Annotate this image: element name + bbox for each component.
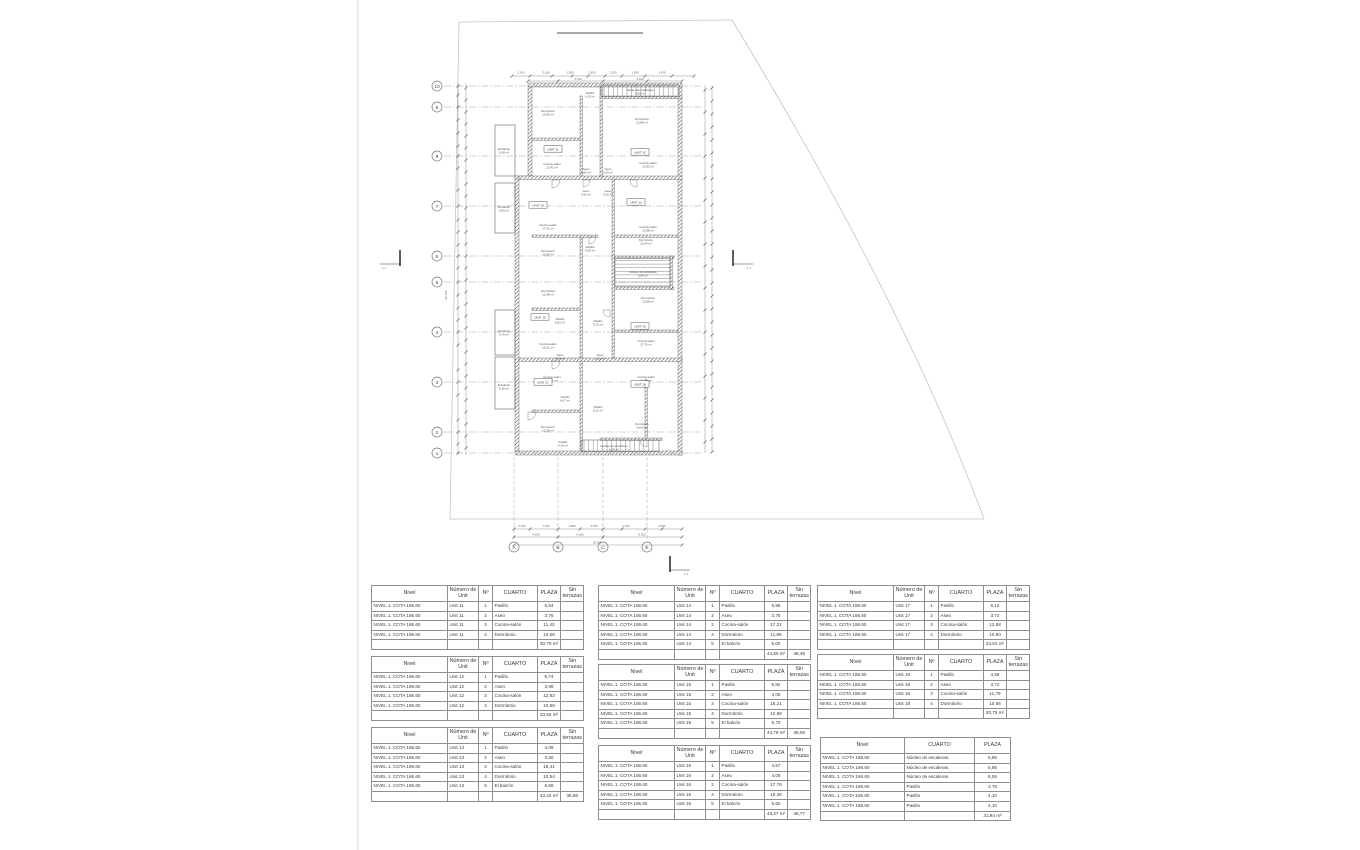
- cell: [788, 762, 811, 772]
- cell: 1: [706, 762, 720, 772]
- cell: 3,75: [765, 611, 788, 621]
- dimension-label: 2.100: [518, 524, 526, 528]
- cell: 5,95: [975, 754, 1011, 764]
- table-row: NIVEL 1. COTA 186.60Unit 133Cocina-salón…: [372, 763, 584, 773]
- cell: 4,08: [765, 771, 788, 781]
- table-row: NIVEL 1. COTA 186.60Unit 122Aseo3,99: [372, 682, 584, 692]
- dimension-label: 1.850: [568, 524, 576, 528]
- cell: Aseo: [720, 771, 765, 781]
- column-header: Nivel: [599, 746, 675, 762]
- cell: [561, 744, 584, 754]
- cell: Núcleo de escaleras.: [905, 763, 975, 773]
- table-row: NIVEL 1. COTA 186.60Núcleo de escaleras.…: [821, 773, 1011, 783]
- room-label: Aseo3,85 m²: [581, 167, 591, 174]
- dimension-label: 6.000: [576, 533, 584, 537]
- cell: [788, 781, 811, 791]
- column-header: PLAZA: [975, 738, 1011, 754]
- cell: Dormitorio: [720, 630, 765, 640]
- table-row: NIVEL 1. COTA 186.60Unit 151Pasillo6,82: [599, 681, 811, 691]
- cell: NIVEL 1. COTA 186.60: [372, 753, 448, 763]
- schedule-unit-12: NivelNúmero de UnitNºCUARTOPLAZASin terr…: [371, 656, 584, 721]
- column-header: CUARTO: [720, 746, 765, 762]
- total-area: 33,55 m²: [538, 711, 561, 721]
- dimension-label: 4.100: [532, 533, 540, 537]
- cell: 5,54: [538, 602, 561, 612]
- table-row: NIVEL 1. COTA 186.60Núcleo de escaleras.…: [821, 754, 1011, 764]
- cell: NIVEL 1. COTA 186.60: [372, 682, 448, 692]
- cell: 3,72: [984, 611, 1007, 621]
- dimension-label: 2.100: [609, 71, 617, 75]
- cell: NIVEL 1. COTA 186.60: [372, 673, 448, 683]
- cell: NIVEL 1. COTA 186.60: [818, 680, 894, 690]
- header-row: NivelNúmero de UnitNºCUARTOPLAZASin terr…: [818, 655, 1030, 671]
- cell: Unit 15: [675, 690, 706, 700]
- cell: Aseo: [720, 690, 765, 700]
- column-header: CUARTO: [720, 586, 765, 602]
- cell: 18,41: [538, 763, 561, 773]
- grid-bubble-label: E: [645, 545, 648, 551]
- cell: [788, 690, 811, 700]
- cell: Cocina-salón: [720, 781, 765, 791]
- room-label: Aseo3,91 m²: [581, 189, 591, 196]
- total-row: 30,79 m²: [372, 640, 584, 650]
- cell: [372, 711, 448, 721]
- cell: NIVEL 1. COTA 186.60: [821, 754, 905, 764]
- cell: [788, 790, 811, 800]
- cell: Pasillo: [720, 762, 765, 772]
- cell: 6,12: [984, 602, 1007, 612]
- cell: 2: [706, 771, 720, 781]
- room-label: Cocina-salón15,21 m²: [539, 342, 557, 349]
- cell: [925, 640, 939, 650]
- table-row: NIVEL 1. COTA 186.60Unit 171Pasillo6,12: [818, 602, 1030, 612]
- column-header: CUARTO: [720, 665, 765, 681]
- room-label: Pasillo5,95 m²: [585, 245, 595, 252]
- cell: [479, 640, 493, 650]
- room-label: Cocina-salón13,41 m²: [543, 162, 561, 169]
- cell: 3: [706, 621, 720, 631]
- cell: Cocina-salón: [720, 700, 765, 710]
- cell: [372, 640, 448, 650]
- cell: 3,99: [538, 682, 561, 692]
- cell: 5,95: [765, 602, 788, 612]
- cell: Dormitorio: [720, 709, 765, 719]
- column-header: Sin terrazas: [561, 586, 584, 602]
- cell: Unit 16: [675, 781, 706, 791]
- room-label: Cocina-salón12,83 m²: [639, 161, 657, 168]
- grid-bubble-label: 4: [436, 330, 439, 336]
- cell: NIVEL 1. COTA 186.60: [599, 681, 675, 691]
- building-walls: [515, 83, 682, 455]
- total-area: 44,79 m²: [765, 728, 788, 738]
- column-header: CUARTO: [939, 586, 984, 602]
- cell: NIVEL 1. COTA 186.60: [599, 709, 675, 719]
- cell: Pasillo: [493, 602, 538, 612]
- dimension-label: 2.650: [588, 71, 596, 75]
- drawing-sheet: 10987654321ABCEDormitorio13,69 m²Pasillo…: [0, 0, 1360, 850]
- cell: [1007, 621, 1030, 631]
- dimension-label: 2.100: [622, 524, 630, 528]
- column-header: Número de Unit: [675, 746, 706, 762]
- section-marker-label: 1.1: [684, 572, 688, 576]
- cell: Unit 13: [448, 753, 479, 763]
- cell: Pasillo: [905, 792, 975, 802]
- cell: 39,09: [788, 728, 811, 738]
- cell: Aseo: [493, 682, 538, 692]
- cell: NIVEL 1. COTA 186.60: [818, 699, 894, 709]
- cell: Dormitorio: [720, 790, 765, 800]
- cell: [493, 711, 538, 721]
- column-header: Nivel: [372, 657, 448, 673]
- overall-dimension-label: 29.390: [444, 290, 448, 299]
- cell: Unit 12: [448, 692, 479, 702]
- cell: [372, 791, 448, 801]
- column-header: CUARTO: [493, 586, 538, 602]
- schedule-unit-18: NivelNúmero de UnitNºCUARTOPLAZASin terr…: [817, 654, 1030, 719]
- cell: NIVEL 1. COTA 186.60: [599, 771, 675, 781]
- grid-bubble-label: 1: [436, 451, 439, 457]
- cell: Pasillo: [493, 744, 538, 754]
- cell: 11,43: [538, 621, 561, 631]
- cell: 12,88: [984, 621, 1007, 631]
- cell: [599, 728, 675, 738]
- cell: [561, 630, 584, 640]
- column-header: Nivel: [599, 665, 675, 681]
- balconies: [495, 125, 515, 409]
- cell: Unit 17: [894, 630, 925, 640]
- cell: NIVEL 1. COTA 186.60: [372, 772, 448, 782]
- table-row: NIVEL 1. COTA 186.60Pasillo3,78: [821, 782, 1011, 792]
- cell: El balcón: [720, 800, 765, 810]
- cell: 17,21: [765, 621, 788, 631]
- cell: NIVEL 1. COTA 186.60: [599, 621, 675, 631]
- cell: Unit 14: [675, 630, 706, 640]
- column-header: Sin terrazas: [1007, 586, 1030, 602]
- cell: NIVEL 1. COTA 186.60: [821, 763, 905, 773]
- table-row: NIVEL 1. COTA 186.60Unit 113Cocina-salón…: [372, 621, 584, 631]
- cell: [821, 811, 905, 821]
- grid-bubble-label: 7: [436, 204, 439, 210]
- schedule-unit-15: NivelNúmero de UnitNºCUARTOPLAZASin terr…: [598, 664, 811, 739]
- column-header: Nivel: [818, 586, 894, 602]
- room-label: Dormitorio13,88 m²: [635, 117, 649, 124]
- total-area: 43,37 m²: [765, 809, 788, 819]
- room-label: Dormitorio13,88 m²: [641, 296, 655, 303]
- column-header: Nº: [706, 665, 720, 681]
- cell: 38,49: [788, 649, 811, 659]
- cell: 3: [706, 700, 720, 710]
- cell: [561, 611, 584, 621]
- room-label: El balcón5,68 m²: [498, 147, 511, 154]
- cell: [894, 709, 925, 719]
- cell: [675, 809, 706, 819]
- table-row: NIVEL 1. COTA 186.60Núcleo de escaleras.…: [821, 763, 1011, 773]
- cell: Cocina-salón: [939, 621, 984, 631]
- cell: NIVEL 1. COTA 186.60: [818, 630, 894, 640]
- grid-bubble-label: 3: [436, 380, 439, 386]
- cell: Dormitorio: [939, 630, 984, 640]
- section-marker-label: 1.1: [382, 266, 386, 270]
- total-row: 43,37 m²36,77: [599, 809, 811, 819]
- column-header: Nivel: [599, 586, 675, 602]
- cell: 3: [925, 621, 939, 631]
- table-row: NIVEL 1. COTA 186.60Unit 132Aseo3,60: [372, 753, 584, 763]
- cell: 5,74: [538, 673, 561, 683]
- cell: Unit 15: [675, 709, 706, 719]
- cell: [905, 811, 975, 821]
- table-row: NIVEL 1. COTA 186.60Unit 155El balcón5,7…: [599, 719, 811, 729]
- cell: NIVEL 1. COTA 186.60: [599, 781, 675, 791]
- room-label: Núcleo de escaleras5,95 m²: [600, 444, 628, 451]
- cell: [939, 709, 984, 719]
- cell: Pasillo: [720, 681, 765, 691]
- cell: Unit 17: [894, 621, 925, 631]
- table-row: NIVEL 1. COTA 186.60Pasillo4,10: [821, 792, 1011, 802]
- table-row: NIVEL 1. COTA 186.60Unit 131Pasillo4,09: [372, 744, 584, 754]
- cell: NIVEL 1. COTA 186.60: [818, 671, 894, 681]
- cell: [599, 809, 675, 819]
- cell: 6,00: [765, 640, 788, 650]
- cell: Cocina-salón: [720, 621, 765, 631]
- cell: 5,70: [765, 719, 788, 729]
- cell: Unit 14: [675, 640, 706, 650]
- cell: [939, 640, 984, 650]
- column-header: Nº: [925, 586, 939, 602]
- cell: 3: [925, 690, 939, 700]
- cell: 4,58: [984, 671, 1007, 681]
- header-row: NivelNúmero de UnitNºCUARTOPLAZASin terr…: [372, 657, 584, 673]
- cell: 10,54: [538, 772, 561, 782]
- header-row: NivelNúmero de UnitNºCUARTOPLAZASin terr…: [599, 586, 811, 602]
- cell: NIVEL 1. COTA 186.60: [818, 611, 894, 621]
- column-header: Nº: [706, 586, 720, 602]
- cell: [599, 649, 675, 659]
- cell: Unit 13: [448, 782, 479, 792]
- cell: Unit 13: [448, 744, 479, 754]
- column-header: Nivel: [821, 738, 905, 754]
- cell: [1007, 699, 1030, 709]
- cell: [561, 763, 584, 773]
- room-label: Cocina-salón17,76 m²: [637, 339, 655, 346]
- column-header: Nivel: [372, 728, 448, 744]
- room-label: El balcón5,30 m²: [498, 383, 511, 390]
- cell: 10,06: [538, 630, 561, 640]
- room-label: El balcón5,55 m²: [498, 205, 511, 212]
- dimension-label: 2.850: [658, 524, 666, 528]
- cell: [788, 630, 811, 640]
- column-header: PLAZA: [765, 746, 788, 762]
- cell: [720, 728, 765, 738]
- cell: 12,98: [765, 709, 788, 719]
- cell: [706, 728, 720, 738]
- column-header: Número de Unit: [675, 586, 706, 602]
- room-label: Pasillo4,13 m²: [585, 91, 595, 98]
- cell: 6,60: [765, 800, 788, 810]
- header-row: NivelNúmero de UnitNºCUARTOPLAZASin terr…: [372, 728, 584, 744]
- cell: [1007, 611, 1030, 621]
- cell: Unit 15: [675, 719, 706, 729]
- cell: 3: [479, 763, 493, 773]
- cell: NIVEL 1. COTA 186.60: [599, 602, 675, 612]
- cell: 2: [479, 682, 493, 692]
- cell: NIVEL 1. COTA 186.60: [372, 621, 448, 631]
- dimension-label: 1.550: [631, 71, 639, 75]
- column-header: Número de Unit: [448, 657, 479, 673]
- room-label: Aseo3,64 m²: [603, 167, 613, 174]
- column-header: Nº: [706, 746, 720, 762]
- cell: [1007, 680, 1030, 690]
- cell: 4: [925, 699, 939, 709]
- cell: [561, 782, 584, 792]
- cell: Unit 11: [448, 611, 479, 621]
- cell: Unit 16: [675, 762, 706, 772]
- table-row: NIVEL 1. COTA 186.60Unit 142Aseo3,75: [599, 611, 811, 621]
- cell: 5: [706, 719, 720, 729]
- table-row: NIVEL 1. COTA 186.60Unit 135El balcón6,6…: [372, 782, 584, 792]
- cell: [561, 673, 584, 683]
- cell: NIVEL 1. COTA 186.60: [821, 773, 905, 783]
- column-header: Número de Unit: [448, 728, 479, 744]
- cell: 5,95: [975, 763, 1011, 773]
- table-row: NIVEL 1. COTA 186.60Unit 121Pasillo5,74: [372, 673, 584, 683]
- table-row: NIVEL 1. COTA 186.60Unit 172Aseo3,72: [818, 611, 1030, 621]
- cell: Dormitorio: [493, 630, 538, 640]
- cell: Pasillo: [493, 673, 538, 683]
- cell: Unit 16: [675, 790, 706, 800]
- cell: [788, 800, 811, 810]
- cell: [1007, 709, 1030, 719]
- cell: Unit 14: [675, 611, 706, 621]
- dimension-label: 18.500: [593, 541, 602, 545]
- room-label: Pasillo4,10 m²: [558, 440, 568, 447]
- cell: NIVEL 1. COTA 186.60: [372, 763, 448, 773]
- schedule-unit-11: NivelNúmero de UnitNºCUARTOPLAZASin terr…: [371, 585, 584, 650]
- cell: Unit 18: [894, 699, 925, 709]
- cell: 1: [479, 673, 493, 683]
- cell: Unit 18: [894, 690, 925, 700]
- room-label: Aseo4,16 m²: [603, 189, 613, 196]
- unit-badge-label: UNIT 15: [534, 316, 546, 320]
- cell: Aseo: [493, 753, 538, 763]
- cell: NIVEL 1. COTA 186.60: [599, 611, 675, 621]
- cell: NIVEL 1. COTA 186.60: [372, 701, 448, 711]
- total-row: 30,75 m²: [818, 709, 1030, 719]
- schedule-unit-17: NivelNúmero de UnitNºCUARTOPLAZASin terr…: [817, 585, 1030, 650]
- table-row: NIVEL 1. COTA 186.60Unit 123Cocina-salón…: [372, 692, 584, 702]
- table-row: NIVEL 1. COTA 186.60Unit 144Dormitorio11…: [599, 630, 811, 640]
- cell: 3,60: [538, 753, 561, 763]
- cell: 8,06: [975, 773, 1011, 783]
- cell: 12,83: [538, 692, 561, 702]
- cell: 6,68: [538, 782, 561, 792]
- cell: [1007, 640, 1030, 650]
- cell: Unit 14: [675, 602, 706, 612]
- cell: NIVEL 1. COTA 186.60: [599, 719, 675, 729]
- dimension-label: 3.530: [590, 524, 598, 528]
- cell: NIVEL 1. COTA 186.60: [372, 782, 448, 792]
- cell: 4,09: [538, 744, 561, 754]
- cell: [1007, 630, 1030, 640]
- cell: [561, 772, 584, 782]
- table-row: NIVEL 1. COTA 186.60Unit 143Cocina-salón…: [599, 621, 811, 631]
- cell: 4,57: [765, 762, 788, 772]
- column-header: Sin terrazas: [788, 746, 811, 762]
- cell: 4: [925, 630, 939, 640]
- cell: NIVEL 1. COTA 186.60: [372, 630, 448, 640]
- total-row: 33,55 m²: [372, 711, 584, 721]
- cell: Unit 18: [894, 671, 925, 681]
- cell: NIVEL 1. COTA 186.60: [818, 690, 894, 700]
- total-area: 30,79 m²: [538, 640, 561, 650]
- table-row: NIVEL 1. COTA 186.60Unit 182Aseo3,72: [818, 680, 1030, 690]
- column-header: Nivel: [372, 586, 448, 602]
- cell: NIVEL 1. COTA 186.60: [821, 792, 905, 802]
- cell: 4: [479, 701, 493, 711]
- column-header: CUARTO: [493, 728, 538, 744]
- cell: 4: [479, 630, 493, 640]
- cell: NIVEL 1. COTA 186.60: [599, 690, 675, 700]
- table-row: NIVEL 1. COTA 186.60Unit 164Dormitorio10…: [599, 790, 811, 800]
- cell: El balcón: [720, 640, 765, 650]
- cell: 11,89: [765, 630, 788, 640]
- room-label: Aseo4,08 m²: [555, 353, 565, 360]
- table-row: NIVEL 1. COTA 186.60Unit 184Dormitorio10…: [818, 699, 1030, 709]
- cell: 4,08: [765, 690, 788, 700]
- column-header: Número de Unit: [448, 586, 479, 602]
- header-row: NivelCUARTOPLAZA: [821, 738, 1011, 754]
- cell: Unit 17: [894, 602, 925, 612]
- cell: 3,78: [975, 782, 1011, 792]
- unit-badge-label: UNIT 13: [630, 201, 642, 205]
- column-header: PLAZA: [765, 665, 788, 681]
- grid-bubble-label: 5: [436, 280, 439, 286]
- cell: Pasillo: [905, 801, 975, 811]
- dimension-label: 6.500: [638, 533, 646, 537]
- schedule-common-areas: NivelCUARTOPLAZANIVEL 1. COTA 186.60Núcl…: [820, 737, 1011, 821]
- cell: [788, 719, 811, 729]
- column-header: Número de Unit: [894, 655, 925, 671]
- unit-badge-label: UNIT 18: [634, 383, 646, 387]
- cell: 1: [479, 744, 493, 754]
- cell: 17,76: [765, 781, 788, 791]
- room-label: Aseo5,12 m²: [595, 353, 605, 360]
- cell: [561, 682, 584, 692]
- total-row: 43,32 m²36,68: [372, 791, 584, 801]
- grid-bubble-label: 8: [436, 154, 439, 160]
- table-row: NIVEL 1. COTA 186.60Unit 111Pasillo5,54: [372, 602, 584, 612]
- cell: [894, 640, 925, 650]
- cell: [788, 771, 811, 781]
- column-header: PLAZA: [984, 586, 1007, 602]
- table-row: NIVEL 1. COTA 186.60Unit 114Dormitorio10…: [372, 630, 584, 640]
- grid-bubble-label: C: [601, 545, 605, 551]
- cell: 11,79: [984, 690, 1007, 700]
- table-row: NIVEL 1. COTA 186.60Unit 183Cocina-salón…: [818, 690, 1030, 700]
- cell: Unit 13: [448, 772, 479, 782]
- cell: NIVEL 1. COTA 186.60: [372, 602, 448, 612]
- cell: NIVEL 1. COTA 186.60: [599, 790, 675, 800]
- cell: [925, 709, 939, 719]
- cell: [675, 728, 706, 738]
- cell: [479, 711, 493, 721]
- room-label: Dormitorio11,89 m²: [541, 249, 555, 256]
- cell: 4: [706, 630, 720, 640]
- unit-badge-label: UNIT 12: [634, 151, 646, 155]
- room-label: Pasillo6,12 m²: [593, 319, 603, 326]
- cell: [720, 809, 765, 819]
- cell: [788, 700, 811, 710]
- column-header: PLAZA: [538, 728, 561, 744]
